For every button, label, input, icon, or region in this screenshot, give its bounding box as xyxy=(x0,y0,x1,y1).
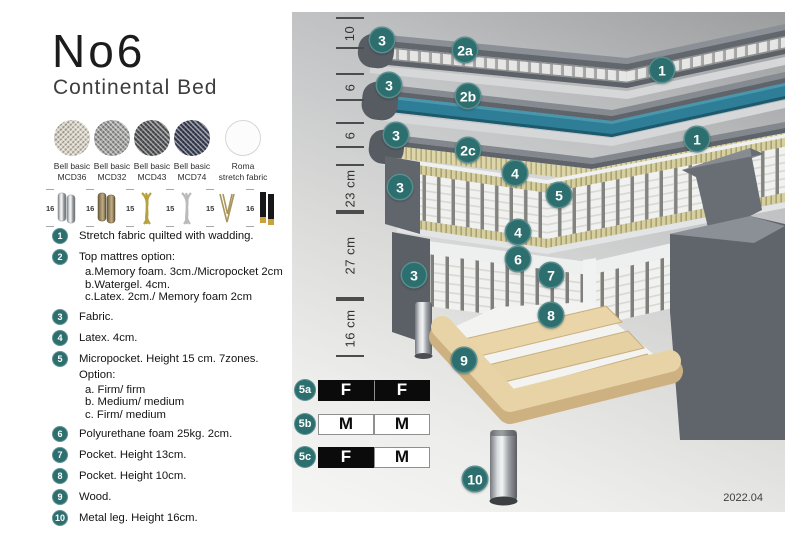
callout-2c: 2c xyxy=(455,137,482,164)
callout-5: 5 xyxy=(546,182,573,209)
leg-option: 15 xyxy=(166,188,200,228)
callout-9: 9 xyxy=(451,347,478,374)
leg-options: 16 16 15 15 xyxy=(46,188,280,228)
spec-item-2: 2 Top mattres option: a.Memory foam. 3cm… xyxy=(52,249,288,304)
dimension-6b: 6 xyxy=(336,122,364,148)
spec-item-3: 3 Fabric. xyxy=(52,309,288,325)
twisted-gold-leg-icon xyxy=(136,190,158,226)
firmness-bar: F F xyxy=(318,380,430,401)
spec-number-badge: 9 xyxy=(52,489,68,505)
product-title: No6 xyxy=(52,24,145,78)
callout-3: 3 xyxy=(369,27,396,54)
infographic-page: No6 Continental Bed Bell basicMCD36 Bell… xyxy=(0,0,800,533)
rear-leg-shape xyxy=(415,302,433,359)
callout-2a: 2a xyxy=(452,37,479,64)
spec-item-10: 10 Metal leg. Height 16cm. xyxy=(52,510,288,526)
callout-3: 3 xyxy=(401,262,428,289)
callout-2b: 2b xyxy=(455,83,482,110)
spec-item-4: 4 Latex. 4cm. xyxy=(52,330,288,346)
spec-item-8: 8 Pocket. Height 10cm. xyxy=(52,468,288,484)
callout-3: 3 xyxy=(383,122,410,149)
fabric-swatches: Bell basicMCD36 Bell basicMCD32 Bell bas… xyxy=(52,120,263,182)
firmness-label: 5c xyxy=(294,446,316,468)
firmness-bar: M M xyxy=(318,414,430,435)
callout-4: 4 xyxy=(502,160,529,187)
spec-list: 1 Stretch fabric quilted with wadding. 2… xyxy=(52,228,288,531)
firmness-label: 5b xyxy=(294,413,316,435)
spec-number-badge: 6 xyxy=(52,426,68,442)
fabric-swatch: Bell basicMCD74 xyxy=(172,120,212,182)
fabric-swatch: Bell basicMCD43 xyxy=(132,120,172,182)
spec-number-badge: 7 xyxy=(52,447,68,463)
dimension-6a: 6 xyxy=(336,73,364,101)
firmness-bar: F M xyxy=(318,447,430,468)
spec-number-badge: 5 xyxy=(52,351,68,367)
spec-number-badge: 10 xyxy=(52,510,68,526)
callout-3: 3 xyxy=(376,72,403,99)
leg-option: 16 xyxy=(46,188,80,228)
exploded-bed-diagram: 10 6 6 23 cm 27 cm 16 cm 3 2a 1 3 2b 1 3… xyxy=(292,12,785,512)
dimension-16cm: 16 cm xyxy=(336,299,364,357)
fabric-swatch-circle xyxy=(134,120,170,156)
fabric-swatch-circle xyxy=(94,120,130,156)
spec-item-5: 5 Micropocket. Height 15 cm. 7zones. Opt… xyxy=(52,351,288,422)
cylinder-bronze-leg-icon xyxy=(96,190,118,226)
hairpin-leg-icon xyxy=(216,190,238,226)
callout-7: 7 xyxy=(538,262,565,289)
firmness-row-5b: 5b M M xyxy=(294,413,430,435)
spec-item-7: 7 Pocket. Height 13cm. xyxy=(52,447,288,463)
fabric-swatch-circle xyxy=(225,120,261,156)
spec-number-badge: 2 xyxy=(52,249,68,265)
firmness-row-5a: 5a F F xyxy=(294,379,430,401)
dimension-10: 10 xyxy=(336,17,364,49)
callout-8: 8 xyxy=(538,302,565,329)
fabric-swatch: Romastretch fabric xyxy=(223,120,263,182)
dimension-27cm: 27 cm xyxy=(336,212,364,299)
version-stamp: 2022.04 xyxy=(723,492,763,504)
leg-option: 16 xyxy=(86,188,120,228)
twisted-silver-leg-icon xyxy=(176,190,198,226)
spec-item-9: 9 Wood. xyxy=(52,489,288,505)
callout-6: 6 xyxy=(505,246,532,273)
callout-1: 1 xyxy=(649,57,676,84)
spec-number-badge: 3 xyxy=(52,309,68,325)
leg-option: 16 xyxy=(246,188,280,228)
product-subtitle: Continental Bed xyxy=(53,76,217,100)
leg-option: 15 xyxy=(206,188,240,228)
black-gold-tip-leg-icon xyxy=(256,190,278,226)
callout-4: 4 xyxy=(505,219,532,246)
fabric-swatch: Bell basicMCD32 xyxy=(92,120,132,182)
callout-1: 1 xyxy=(684,126,711,153)
spec-item-1: 1 Stretch fabric quilted with wadding. xyxy=(52,228,288,244)
spec-number-badge: 8 xyxy=(52,468,68,484)
fabric-swatch-circle xyxy=(174,120,210,156)
callout-10: 10 xyxy=(462,466,489,493)
callout-3: 3 xyxy=(387,174,414,201)
fabric-swatch: Bell basicMCD36 xyxy=(52,120,92,182)
firmness-row-5c: 5c F M xyxy=(294,446,430,468)
front-leg-shape xyxy=(490,430,518,506)
bed-layers-illustration xyxy=(292,12,785,510)
spec-item-6: 6 Polyurethane foam 25kg. 2cm. xyxy=(52,426,288,442)
leg-option: 15 xyxy=(126,188,160,228)
dimension-23cm: 23 cm xyxy=(336,164,364,212)
spec-number-badge: 1 xyxy=(52,228,68,244)
info-panel: No6 Continental Bed Bell basicMCD36 Bell… xyxy=(0,0,292,533)
fabric-swatch-circle xyxy=(54,120,90,156)
cylinder-silver-leg-icon xyxy=(56,190,78,226)
spec-number-badge: 4 xyxy=(52,330,68,346)
firmness-label: 5a xyxy=(294,379,316,401)
